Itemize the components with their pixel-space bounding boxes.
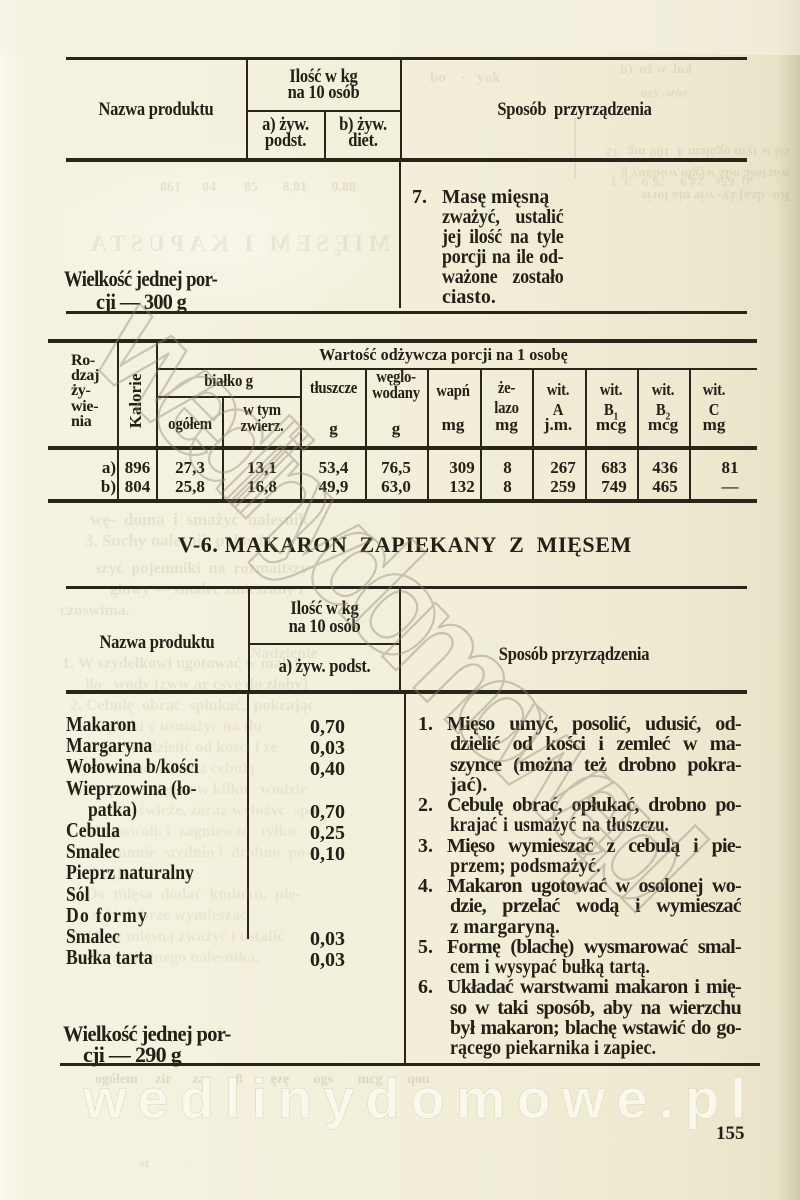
svg-text:wedlinydomowe.pl: wedlinydomowe.pl — [82, 1067, 757, 1130]
